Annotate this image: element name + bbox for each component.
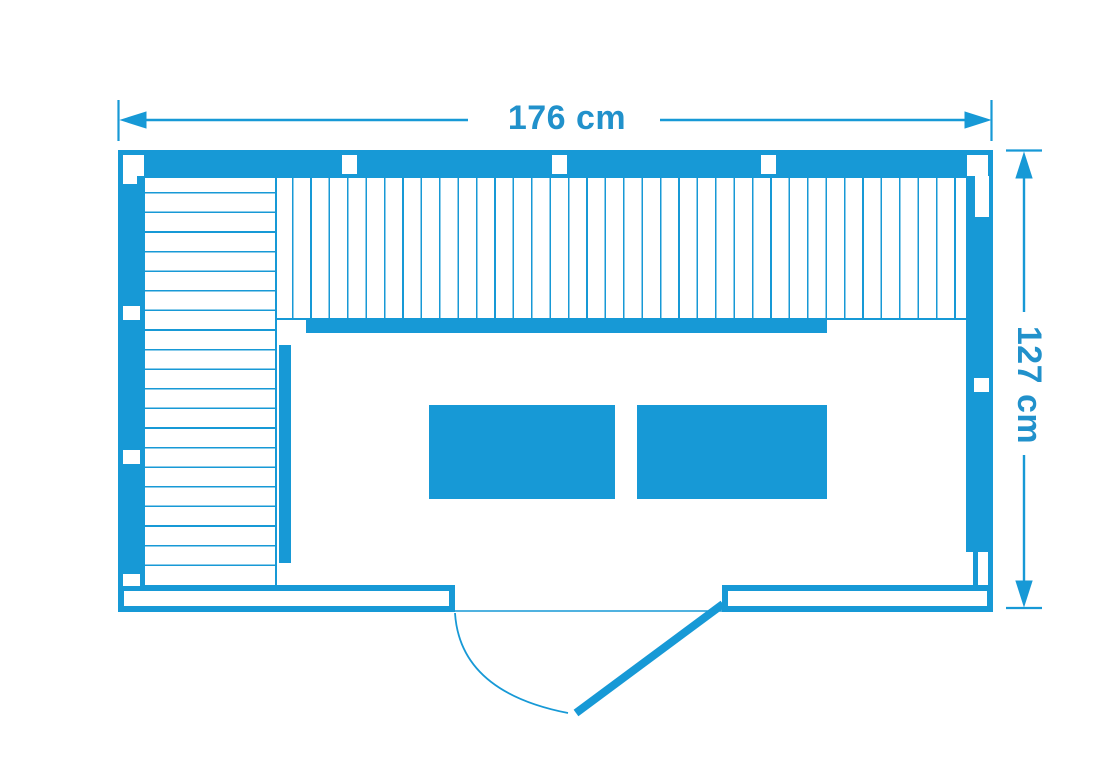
door (455, 604, 725, 713)
floor-plan-canvas: 176 cm 127 cm (0, 0, 1110, 780)
arrow-left-icon (121, 112, 146, 128)
arrow-up-icon (1016, 153, 1032, 178)
door-swing-arc (455, 613, 568, 713)
depth-dimension-label: 127 cm (1008, 273, 1050, 497)
arrow-right-icon (965, 112, 990, 128)
arrow-down-icon (1016, 581, 1032, 606)
width-dimension-label: 176 cm (455, 97, 679, 139)
door-leaf (576, 604, 723, 713)
